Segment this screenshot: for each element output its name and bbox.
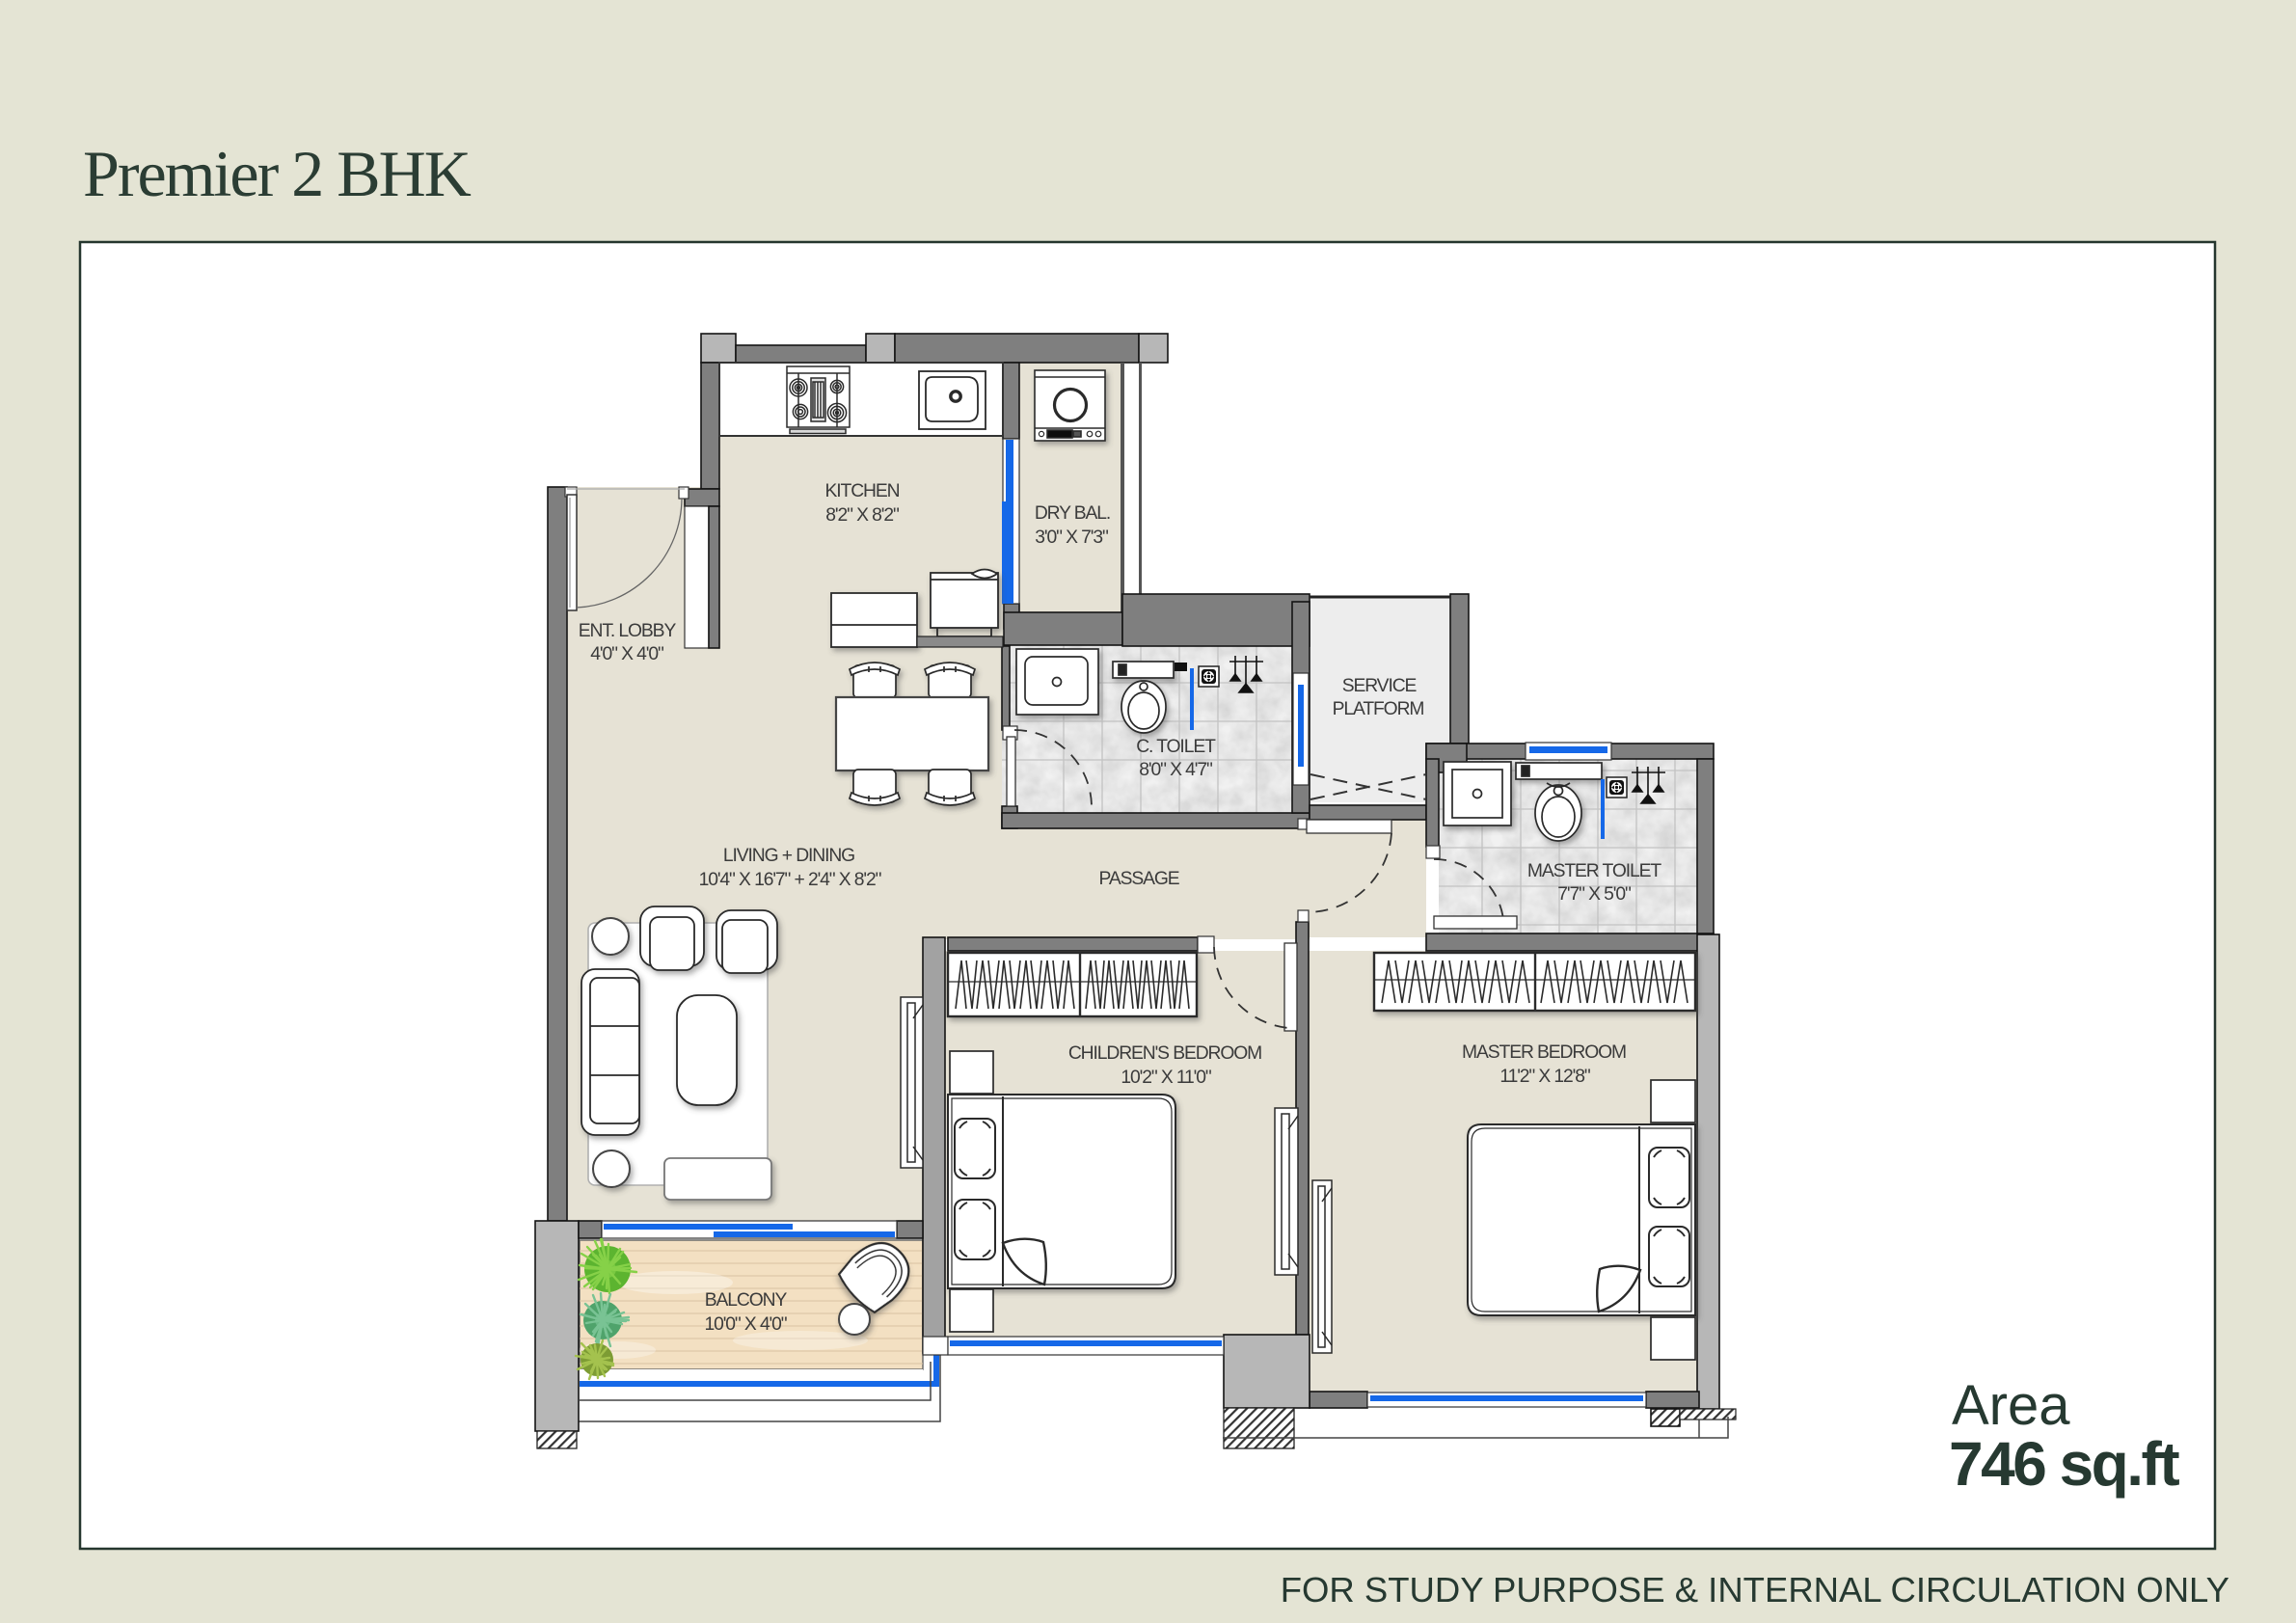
svg-text:PLATFORM: PLATFORM xyxy=(1333,699,1424,719)
svg-text:4'0" X 4'0": 4'0" X 4'0" xyxy=(590,644,664,664)
svg-text:MASTER BEDROOM: MASTER BEDROOM xyxy=(1462,1042,1626,1063)
svg-text:7'7" X 5'0": 7'7" X 5'0" xyxy=(1557,884,1632,905)
svg-text:DRY BAL.: DRY BAL. xyxy=(1035,503,1110,524)
svg-text:SERVICE: SERVICE xyxy=(1342,676,1418,696)
svg-text:746 sq.ft: 746 sq.ft xyxy=(1949,1429,2179,1499)
svg-text:8'2" X 8'2": 8'2" X 8'2" xyxy=(825,505,900,526)
svg-text:10'0" X 4'0": 10'0" X 4'0" xyxy=(704,1314,787,1335)
svg-text:3'0" X 7'3": 3'0" X 7'3" xyxy=(1035,527,1109,548)
svg-text:FOR STUDY PURPOSE & INTERNAL C: FOR STUDY PURPOSE & INTERNAL CIRCULATION… xyxy=(1281,1570,2229,1609)
svg-text:10'2" X 11'0": 10'2" X 11'0" xyxy=(1121,1068,1211,1088)
svg-text:8'0" X 4'7": 8'0" X 4'7" xyxy=(1139,760,1213,780)
svg-text:CHILDREN'S BEDROOM: CHILDREN'S BEDROOM xyxy=(1068,1043,1261,1064)
svg-text:MASTER TOILET: MASTER TOILET xyxy=(1527,861,1662,881)
svg-text:ENT. LOBBY: ENT. LOBBY xyxy=(579,621,677,641)
svg-text:BALCONY: BALCONY xyxy=(705,1290,788,1311)
svg-text:PASSAGE: PASSAGE xyxy=(1098,869,1179,889)
svg-text:10'4" X 16'7" + 2'4" X 8'2": 10'4" X 16'7" + 2'4" X 8'2" xyxy=(699,870,882,890)
svg-text:KITCHEN: KITCHEN xyxy=(825,481,900,501)
svg-text:Premier 2 BHK: Premier 2 BHK xyxy=(83,137,472,210)
svg-text:11'2" X 12'8": 11'2" X 12'8" xyxy=(1499,1067,1590,1087)
svg-text:LIVING + DINING: LIVING + DINING xyxy=(723,846,854,866)
svg-text:C. TOILET: C. TOILET xyxy=(1136,737,1216,757)
svg-text:Area: Area xyxy=(1952,1374,2070,1437)
